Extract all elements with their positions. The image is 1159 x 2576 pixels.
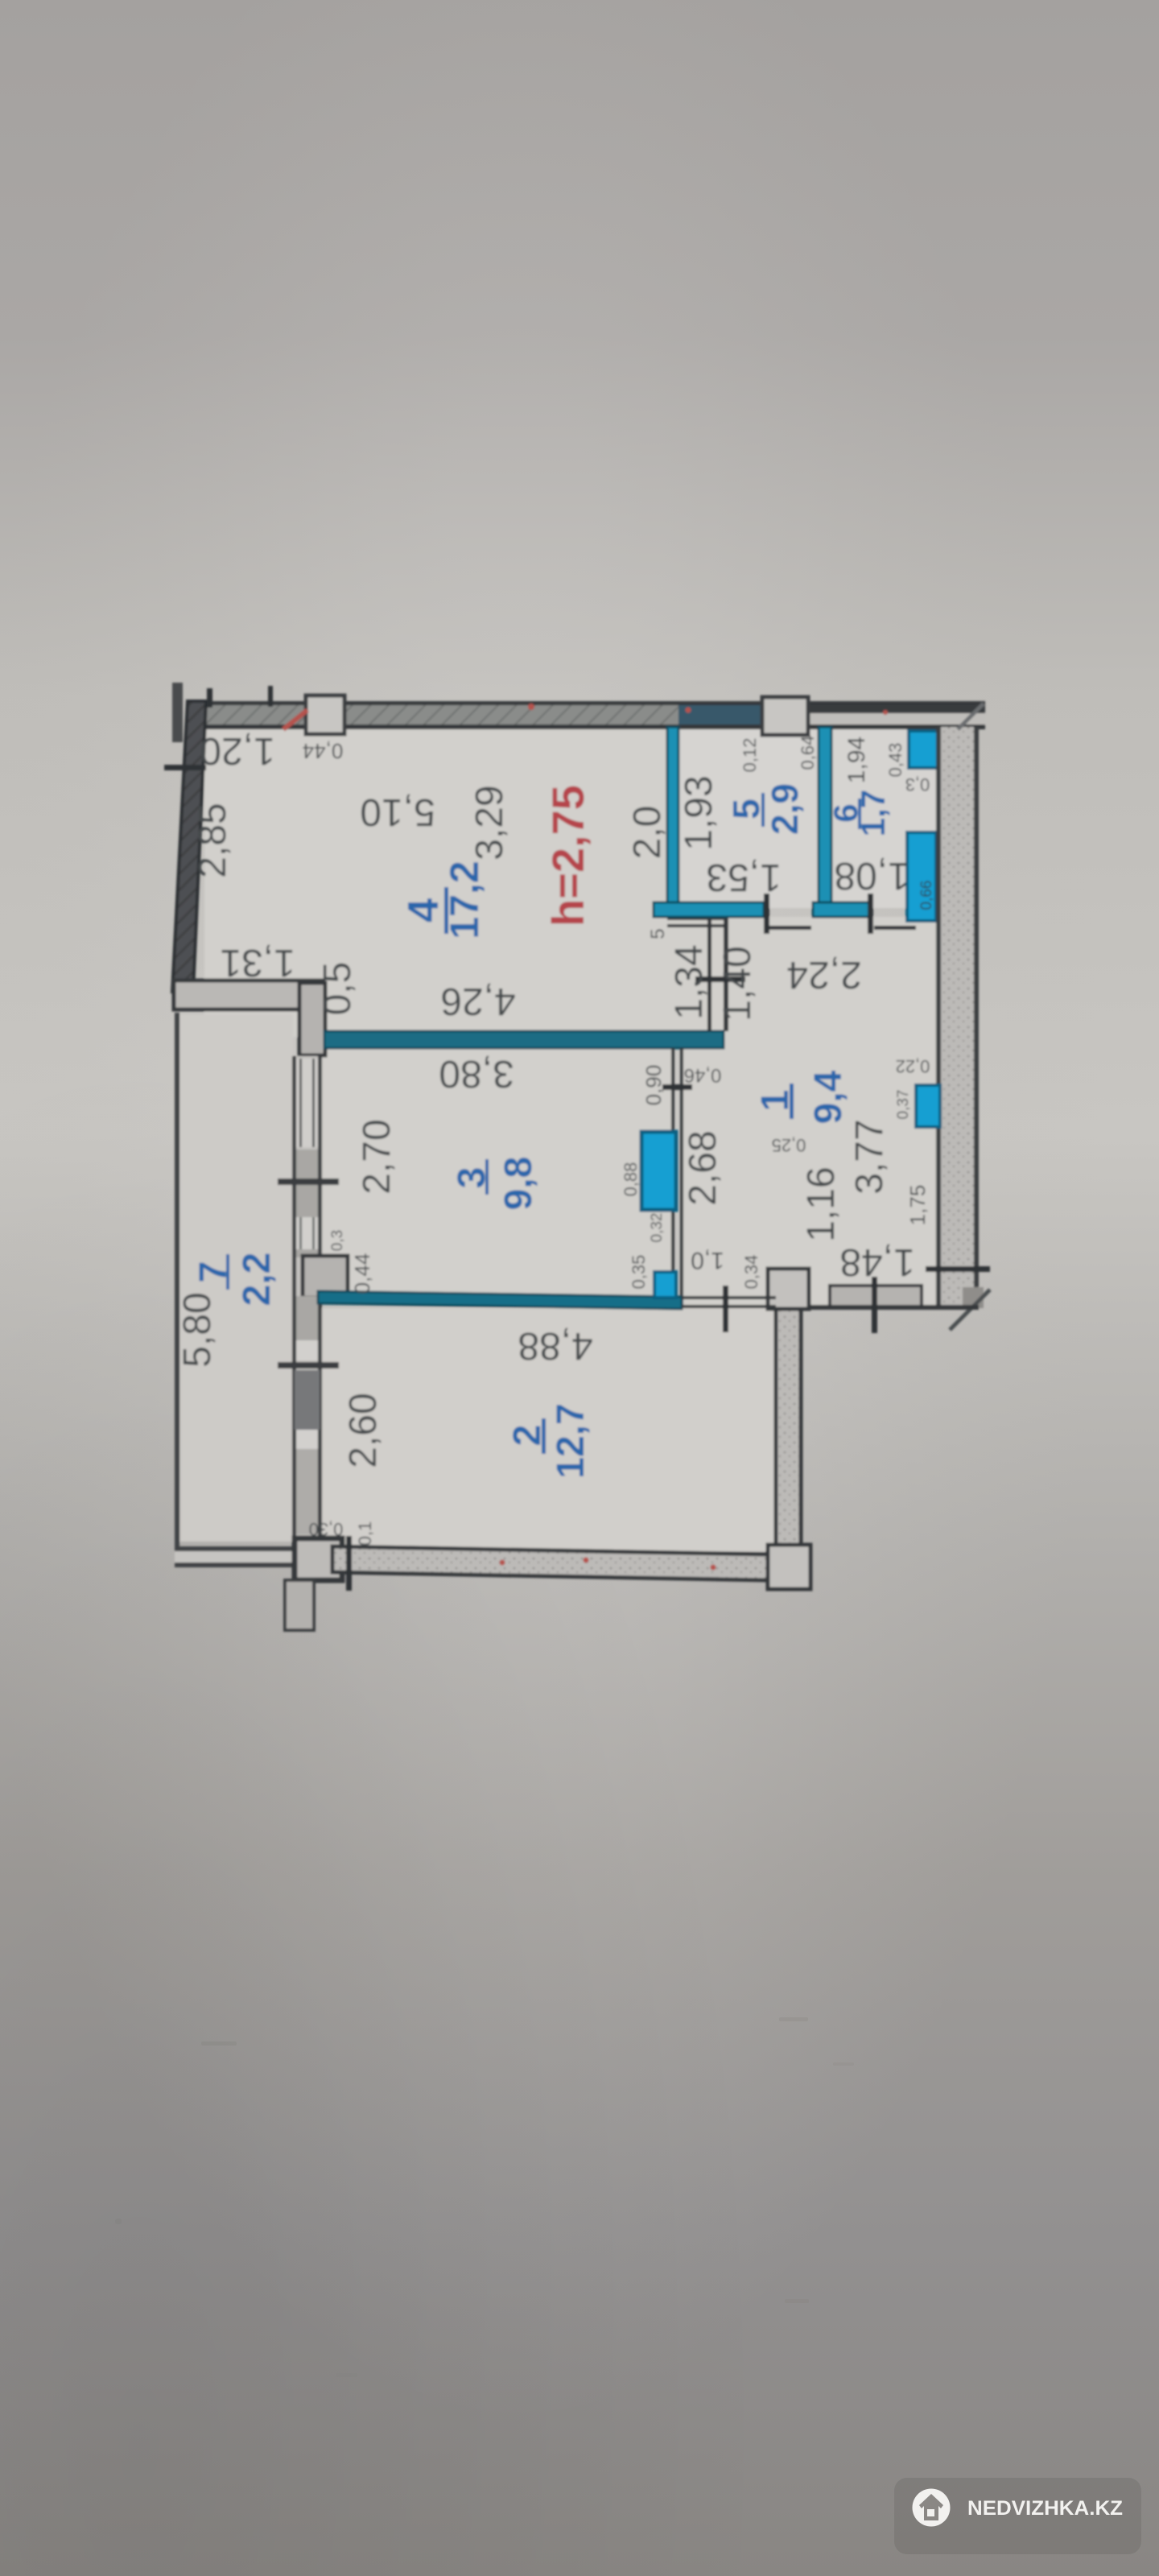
svg-text:2,85: 2,85 [192, 803, 234, 877]
svg-text:1,31: 1,31 [220, 941, 295, 984]
svg-text:h=2,75: h=2,75 [542, 785, 593, 927]
svg-text:4: 4 [399, 898, 448, 923]
svg-text:0,3: 0,3 [329, 1230, 346, 1251]
svg-text:0,35: 0,35 [629, 1255, 649, 1290]
svg-text:0,64: 0,64 [798, 736, 818, 770]
svg-text:12,7: 12,7 [550, 1403, 592, 1478]
svg-text:NEDVIZHKA.KZ: NEDVIZHKA.KZ [967, 2497, 1123, 2520]
svg-text:0,25: 0,25 [772, 1135, 806, 1155]
svg-text:1,48: 1,48 [839, 1241, 914, 1283]
svg-text:1,93: 1,93 [678, 775, 720, 850]
svg-text:0,88: 0,88 [621, 1162, 641, 1197]
svg-text:2,60: 2,60 [342, 1393, 385, 1468]
svg-text:0,43: 0,43 [885, 743, 905, 778]
svg-text:0,66: 0,66 [918, 881, 935, 910]
svg-text:1,7: 1,7 [854, 790, 892, 836]
svg-text:1,08: 1,08 [834, 854, 909, 897]
svg-text:0,37: 0,37 [895, 1090, 912, 1120]
svg-text:1,0: 1,0 [691, 1247, 724, 1274]
svg-text:3,29: 3,29 [468, 785, 511, 860]
svg-text:5,80: 5,80 [176, 1292, 219, 1367]
svg-text:2,70: 2,70 [356, 1119, 398, 1194]
svg-text:5: 5 [647, 928, 669, 939]
svg-text:1,40: 1,40 [716, 946, 759, 1021]
svg-text:0,32: 0,32 [649, 1213, 666, 1243]
svg-text:0,5: 0,5 [316, 962, 359, 1016]
svg-text:1,34: 1,34 [668, 944, 711, 1019]
svg-text:5: 5 [725, 799, 767, 819]
svg-text:2,9: 2,9 [764, 783, 806, 835]
svg-text:4,88: 4,88 [518, 1324, 592, 1367]
svg-text:9,8: 9,8 [497, 1157, 540, 1211]
svg-text:0,90: 0,90 [641, 1065, 666, 1106]
svg-text:2,24: 2,24 [786, 953, 861, 996]
svg-text:0,46: 0,46 [684, 1064, 722, 1086]
svg-text:3,80: 3,80 [439, 1052, 514, 1095]
svg-text:0,1: 0,1 [355, 1521, 375, 1546]
svg-text:1,53: 1,53 [706, 856, 781, 898]
svg-text:0,22: 0,22 [896, 1056, 930, 1076]
svg-text:1,20: 1,20 [200, 729, 274, 772]
svg-text:1,16: 1,16 [800, 1166, 843, 1241]
svg-text:0,44: 0,44 [350, 1253, 374, 1294]
svg-text:2,0: 2,0 [626, 806, 669, 860]
svg-text:2,2: 2,2 [236, 1253, 278, 1307]
svg-text:9,4: 9,4 [807, 1070, 850, 1124]
svg-text:0,44: 0,44 [303, 739, 344, 763]
svg-text:1,75: 1,75 [905, 1185, 930, 1226]
svg-text:0,34: 0,34 [741, 1255, 761, 1290]
svg-text:3,77: 3,77 [848, 1119, 891, 1194]
svg-text:1,94: 1,94 [843, 737, 870, 783]
svg-text:0,12: 0,12 [740, 738, 760, 773]
svg-text:0,3: 0,3 [905, 774, 930, 795]
svg-text:17,2: 17,2 [442, 861, 487, 939]
svg-text:0,30: 0,30 [309, 1519, 344, 1539]
svg-text:5,10: 5,10 [360, 791, 435, 833]
svg-text:2,68: 2,68 [682, 1130, 724, 1205]
svg-text:4,26: 4,26 [440, 980, 515, 1022]
